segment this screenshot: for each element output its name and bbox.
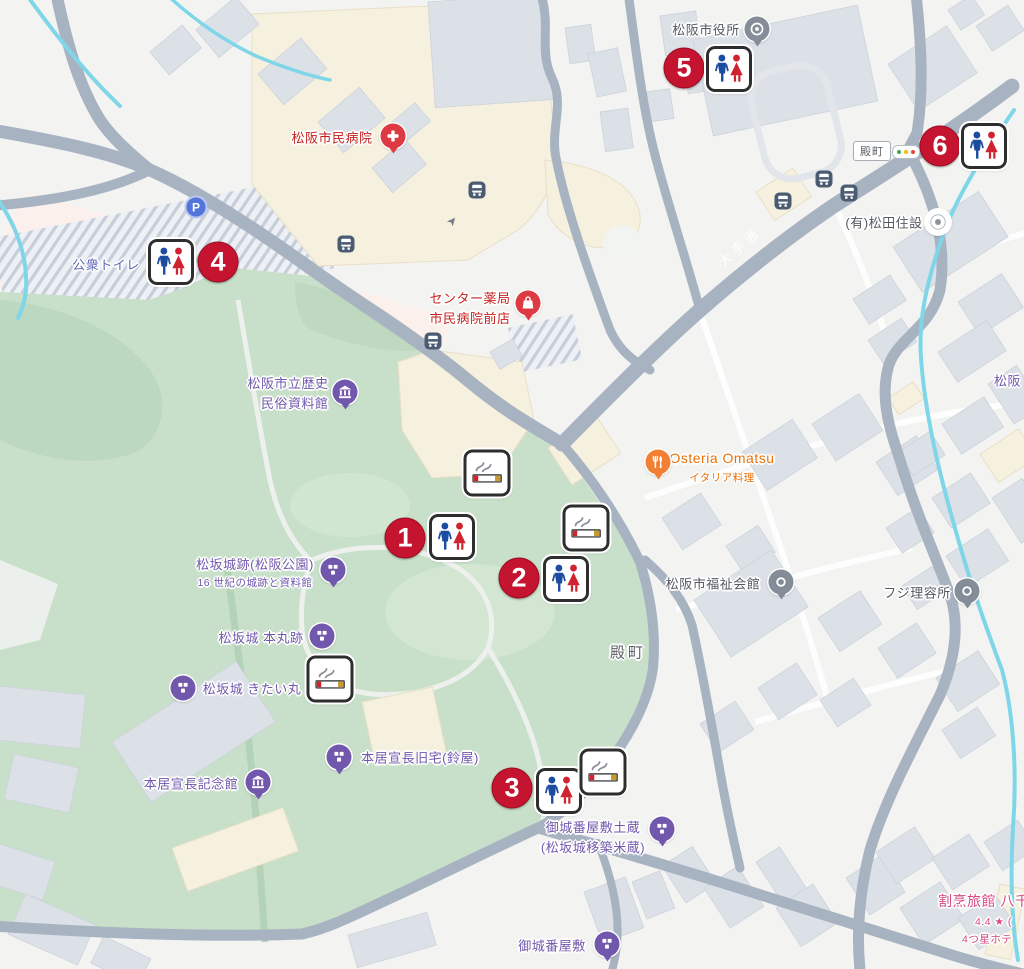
bus-stop-icon[interactable] [425, 333, 442, 350]
poi-label-welfare-hall[interactable]: 松阪市福祉会館 [666, 574, 761, 593]
poi-label-matsusaka-partial[interactable]: 松阪 [994, 371, 1021, 390]
poi-label-castle-ruins[interactable]: 松坂城跡(松阪公園) 16 世紀の城跡と資料館 [196, 555, 314, 591]
toilet-marker-number-5[interactable]: 5 [664, 48, 705, 89]
gojoban-dozo-line1: 御城番屋敷土蔵 [546, 818, 641, 838]
generic-poi-icon[interactable] [926, 210, 951, 235]
pharmacy-line2: 市民病院前店 [429, 309, 510, 329]
bus-stop-icon[interactable] [816, 171, 833, 188]
toilet-sign-icon[interactable] [429, 514, 475, 560]
smoking-area-icon[interactable] [464, 450, 511, 497]
poi-label-kitaimaru[interactable]: 松坂城 きたい丸 [203, 679, 302, 698]
history-museum-line2: 民俗資料館 [261, 394, 329, 414]
map-canvas[interactable]: 松阪市民病院 センター薬局 市民病院前店 松阪市役所 (有)松田住設 公衆トイレ… [0, 0, 1024, 969]
toilet-sign-icon[interactable] [706, 46, 752, 92]
museum-icon[interactable] [246, 770, 271, 795]
toilet-marker-number-3[interactable]: 3 [492, 768, 533, 809]
ryokan-rating: 4.4 ★ ( [975, 916, 1012, 928]
bus-stop-icon[interactable] [841, 185, 858, 202]
historic-site-icon[interactable] [595, 932, 620, 957]
government-icon[interactable] [745, 17, 770, 42]
poi-label-fuji-barber[interactable]: フジ理容所 [883, 583, 951, 602]
osteria-genre: イタリア料理 [689, 470, 755, 486]
poi-label-public-toilet[interactable]: 公衆トイレ [72, 255, 140, 274]
poi-label-honmaru[interactable]: 松坂城 本丸跡 [218, 628, 303, 647]
toilet-sign-icon[interactable] [961, 123, 1007, 169]
restaurant-icon[interactable] [646, 450, 671, 475]
poi-label-norinaga-house[interactable]: 本居宣長旧宅(鈴屋) [361, 748, 479, 767]
hospital-icon[interactable] [381, 124, 406, 149]
pharmacy-line1: センター薬局 [429, 289, 510, 309]
history-museum-line1: 松阪市立歴史 [247, 374, 328, 394]
pharmacy-icon[interactable] [516, 291, 541, 316]
parking-icon[interactable]: P [185, 196, 208, 219]
historic-site-icon[interactable] [327, 745, 352, 770]
generic-poi-icon[interactable] [955, 579, 980, 604]
poi-label-history-museum[interactable]: 松阪市立歴史 民俗資料館 [247, 374, 328, 414]
bus-stop-icon[interactable] [338, 236, 355, 253]
district-label-tonomachi: 殿町 [610, 642, 646, 663]
castle-ruins-sub: 16 世紀の城跡と資料館 [197, 575, 312, 591]
toilet-marker-number-2[interactable]: 2 [499, 558, 540, 599]
museum-icon[interactable] [333, 380, 358, 405]
smoking-area-icon[interactable] [307, 656, 354, 703]
historic-site-icon[interactable] [321, 558, 346, 583]
gojoban-dozo-line2: (松坂城移築米蔵) [541, 838, 645, 858]
poi-label-city-hall[interactable]: 松阪市役所 [672, 20, 740, 39]
poi-label-gojoban-dozo[interactable]: 御城番屋敷土蔵 (松坂城移築米蔵) [541, 818, 645, 858]
poi-label-osteria[interactable]: Osteria Omatsu イタリア料理 [669, 448, 774, 486]
poi-label-ryokan[interactable]: 割烹旅館 八千 [938, 891, 1024, 911]
toilet-marker-number-1[interactable]: 1 [385, 518, 426, 559]
poi-label-pharmacy[interactable]: センター薬局 市民病院前店 [429, 289, 510, 329]
poi-label-gojoban[interactable]: 御城番屋敷 [518, 936, 586, 955]
poi-label-matsuda[interactable]: (有)松田住設 [845, 213, 922, 232]
toilet-sign-icon[interactable] [148, 239, 194, 285]
poi-label-norinaga-museum[interactable]: 本居宣長記念館 [144, 774, 239, 793]
smoking-area-icon[interactable] [563, 505, 610, 552]
ryokan-sub: 4つ星ホテ [962, 932, 1012, 947]
bus-stop-icon[interactable] [775, 193, 792, 210]
road-sign-tonomachi: 殿町 [853, 141, 891, 161]
castle-ruins-name: 松坂城跡(松阪公園) [196, 555, 314, 575]
toilet-marker-number-6[interactable]: 6 [920, 126, 961, 167]
poi-label-hospital[interactable]: 松阪市民病院 [291, 128, 372, 147]
toilet-marker-number-4[interactable]: 4 [198, 242, 239, 283]
generic-poi-icon[interactable] [769, 570, 794, 595]
historic-site-icon[interactable] [171, 676, 196, 701]
toilet-sign-icon[interactable] [543, 556, 589, 602]
osteria-name: Osteria Omatsu [669, 448, 774, 470]
toilet-sign-icon[interactable] [536, 768, 582, 814]
bus-stop-icon[interactable] [469, 182, 486, 199]
smoking-area-icon[interactable] [580, 749, 627, 796]
traffic-light-icon [892, 145, 920, 159]
historic-site-icon[interactable] [650, 817, 675, 842]
historic-site-icon[interactable] [310, 624, 335, 649]
